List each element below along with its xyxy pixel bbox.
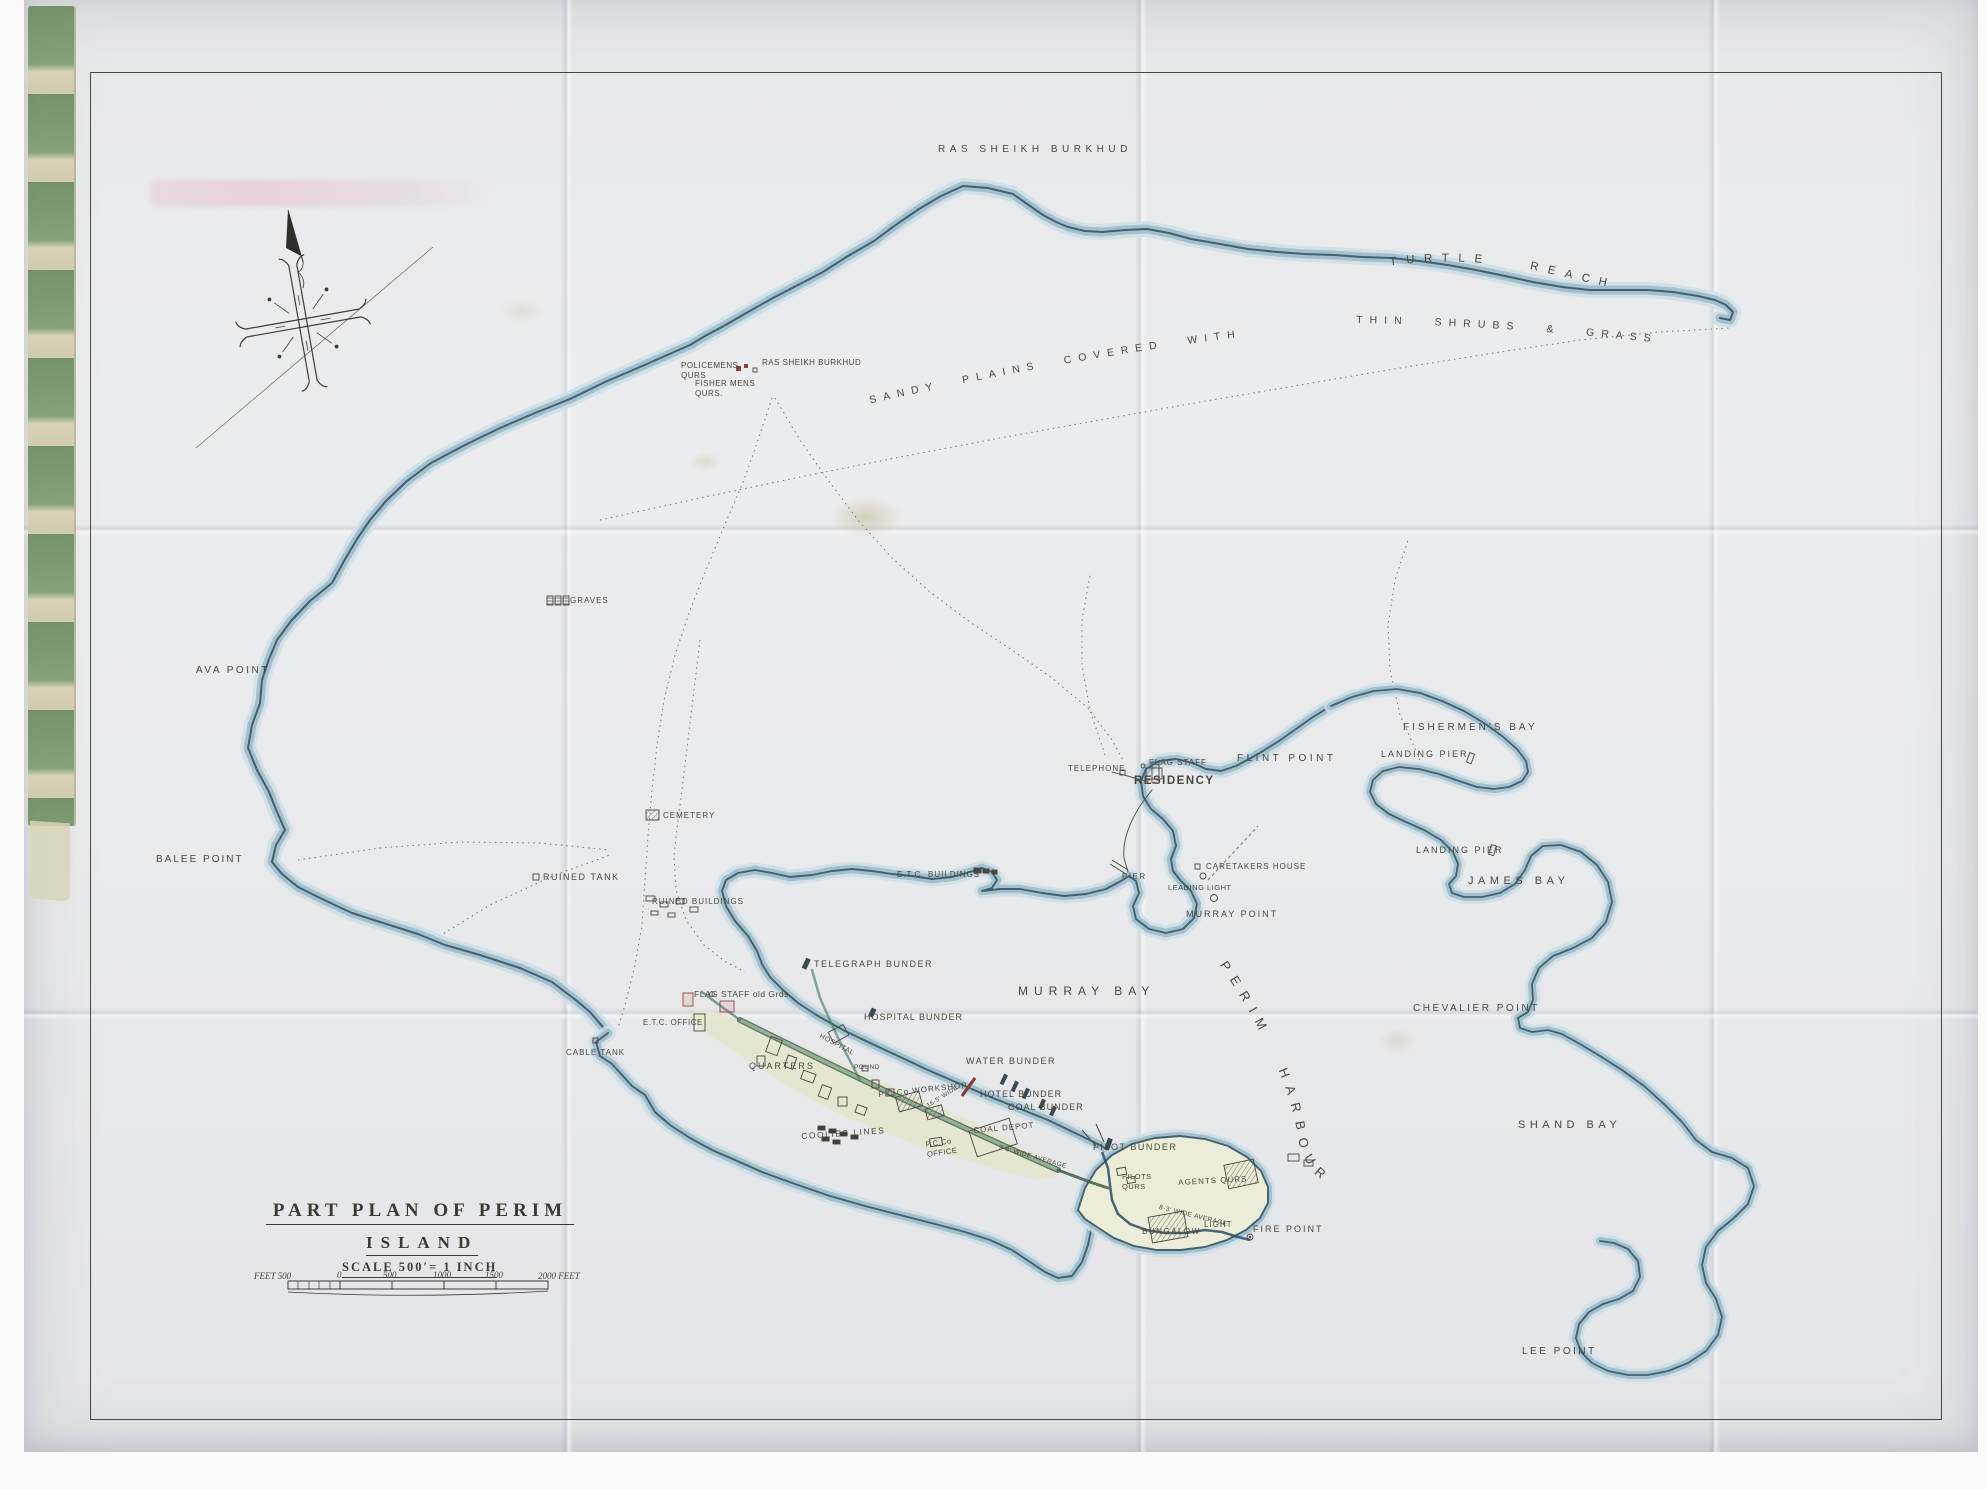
map-label-etc-office: E.T.C. OFFICE (643, 1018, 703, 1028)
map-label-murray-point: MURRAY POINT (1186, 909, 1278, 921)
map-label-pilots-qurs: PILOTS QURS (1122, 1172, 1152, 1192)
map-label-flag-staff-residency: FLAG STAFF (1149, 758, 1207, 768)
scale-bar-feet-left: FEET 500 (254, 1271, 291, 1281)
map-label-lee-point: LEE POINT (1522, 1345, 1597, 1358)
map-label-pier: PIER (1122, 872, 1147, 882)
map-label-ras-sheikh-burkhud-village: RAS SHEIKH BURKHUD (762, 358, 861, 368)
map-label-light: LIGHT (1204, 1220, 1233, 1230)
map-label-fire-point: FIRE POINT (1253, 1224, 1324, 1236)
map-label-hotel-bunder: HOTEL BUNDER (980, 1089, 1062, 1101)
map-label-shand-bay: SHAND BAY (1518, 1118, 1621, 1132)
map-label-james-bay: JAMES BAY (1468, 874, 1569, 888)
map-title-line2: ISLAND (366, 1233, 478, 1256)
map-label-fishermens-bay: FISHERMEN'S BAY (1403, 721, 1538, 734)
map-label-landing-pier-1: LANDING PIER (1381, 749, 1469, 761)
compass-rose-icon (196, 210, 433, 448)
map-label-etc-buildings: E.T.C. BUILDINGS (897, 870, 980, 880)
scanned-map-page: TURTLE REACH SANDY PLAINS COVERED WITH T… (0, 0, 1987, 1489)
map-label-telephone: TELEPHONE (1068, 764, 1125, 774)
map-label-bungalow: BUNGALOW (1142, 1227, 1201, 1237)
dotted-tracks (298, 328, 1730, 1028)
map-drawing: TURTLE REACH SANDY PLAINS COVERED WITH T… (0, 0, 1987, 1489)
scale-bar (288, 1281, 548, 1295)
map-label-residency: RESIDENCY (1134, 774, 1215, 789)
curved-labels: TURTLE REACH SANDY PLAINS COVERED WITH T… (868, 252, 1658, 1187)
map-label-flag-staff-old: FLAG STAFF old Grds (694, 989, 789, 1000)
map-label-leading-light: LEADING LIGHT (1168, 883, 1232, 893)
map-label-ava-point: AVA POINT (196, 664, 270, 677)
map-label-caretakers-house: CARETAKERS HOUSE (1206, 862, 1306, 872)
map-label-coal-bunder: COAL BUNDER (1008, 1102, 1084, 1114)
map-label-quarters: QUARTERS (749, 1061, 815, 1073)
map-label-water-bunder: WATER BUNDER (966, 1056, 1056, 1068)
map-label-chevalier-point: CHEVALIER POINT (1413, 1002, 1540, 1015)
map-label-balee-point: BALEE POINT (156, 853, 244, 866)
map-label-pilot-bunder: PILOT BUNDER (1093, 1142, 1177, 1154)
scale-bar-tick-500: 500 (383, 1270, 397, 1280)
map-label-ras-sheikh-burkhud-beach: RAS SHEIKH BURKHUD (938, 143, 1132, 156)
map-label-ruined-tank: RUINED TANK (543, 872, 620, 884)
scale-bar-tick-1500: 1500 (485, 1270, 503, 1280)
map-label-hospital-bunder: HOSPITAL BUNDER (864, 1012, 963, 1024)
map-label-ruined-buildings: RUINED BUILDINGS (652, 897, 744, 907)
coastline (248, 186, 1754, 1375)
map-label-cable-tank: CABLE TANK (566, 1048, 625, 1058)
map-label-murray-bay: MURRAY BAY (1018, 984, 1155, 1000)
scale-bar-tick-1000: 1000 (433, 1270, 451, 1280)
map-label-flint-point: FLINT POINT (1237, 752, 1336, 765)
scale-bar-tick-0: 0 (337, 1270, 342, 1280)
map-label-cemetery: CEMETERY (663, 811, 715, 821)
map-label-pound: POUND (854, 1064, 880, 1072)
map-label-fisher-mens-qurs: FISHER MENS QURS. (695, 379, 755, 400)
map-scale-text: SCALE 500′= 1 INCH (342, 1260, 497, 1278)
scale-bar-feet-right: 2000 FEET (538, 1271, 580, 1281)
svg-text:SANDY PLAINS COVERED WITH: SANDY PLAINS COVERED WITH (868, 328, 1242, 407)
map-label-telegraph-bunder: TELEGRAPH BUNDER (814, 959, 933, 971)
map-label-graves: GRAVES (570, 596, 609, 606)
map-label-landing-pier-2: LANDING PIER (1416, 845, 1504, 857)
svg-text:THIN SHRUBS & GRASS: THIN SHRUBS & GRASS (1356, 314, 1658, 345)
map-title-line1: PART PLAN OF PERIM (266, 1200, 574, 1225)
